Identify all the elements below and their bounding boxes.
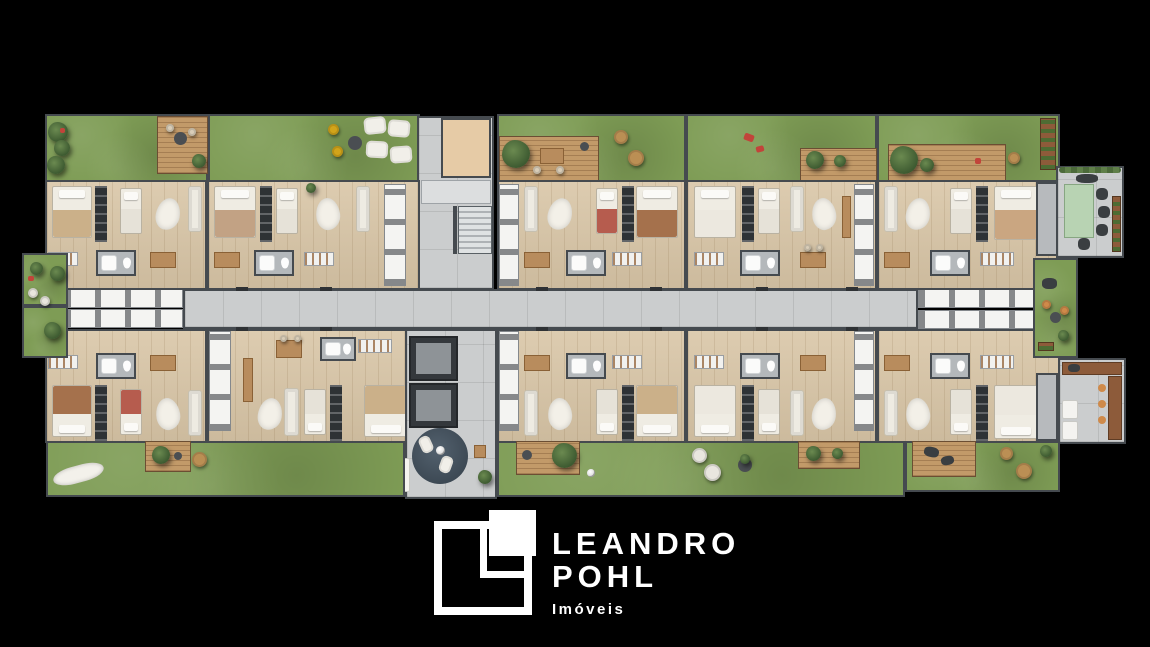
double-bed: [636, 385, 678, 437]
wardrobe: [95, 186, 107, 242]
single-bed: [120, 389, 142, 435]
plant: [806, 151, 824, 169]
rattan-pouf: [614, 130, 628, 144]
sofa: [790, 186, 804, 232]
entry-door: [236, 327, 248, 331]
elevator-shaft: [409, 336, 458, 381]
brand-logo: LEANDRO POHL Imóveis: [434, 508, 754, 628]
sofa: [188, 390, 202, 436]
single-bed: [596, 389, 618, 435]
flowers: [28, 276, 34, 281]
double-bed: [694, 186, 736, 238]
kitchen: [918, 310, 1035, 329]
single-bed: [596, 188, 618, 234]
chair: [533, 166, 541, 174]
plant: [920, 158, 934, 172]
plant: [1040, 445, 1052, 457]
dining-table: [800, 252, 826, 268]
stair-rail: [453, 206, 457, 254]
chair: [294, 335, 301, 342]
double-bed: [214, 186, 256, 238]
sofa: [284, 388, 299, 436]
kitchen: [384, 184, 406, 286]
chair: [1060, 306, 1069, 315]
kitchen: [499, 331, 519, 431]
entry-door: [846, 287, 858, 291]
sofa: [188, 186, 202, 232]
chair: [1042, 300, 1051, 309]
rattan-pouf: [628, 150, 644, 166]
corridor: [183, 289, 918, 329]
planter: [1040, 118, 1056, 170]
sofa: [790, 390, 804, 436]
island: [243, 358, 253, 402]
office-chair: [1078, 238, 1090, 250]
console: [842, 196, 851, 238]
pot: [580, 142, 589, 151]
lounger: [363, 116, 387, 135]
kitchen: [499, 184, 519, 286]
soccer-ball: [587, 469, 595, 477]
double-bed: [364, 385, 408, 437]
planter: [1038, 342, 1054, 351]
brand-text: LEANDRO POHL Imóveis: [552, 528, 740, 618]
pouf: [328, 124, 339, 135]
double-bed: [994, 385, 1038, 439]
kitchen: [64, 309, 183, 328]
bathroom: [320, 337, 356, 361]
closet: [358, 339, 392, 353]
closet: [694, 355, 724, 369]
bathroom: [254, 250, 294, 276]
stool: [1098, 384, 1106, 392]
entry-door: [236, 287, 248, 291]
rattan-pouf: [1008, 152, 1020, 164]
side-table: [474, 445, 486, 458]
dining-table: [276, 340, 302, 358]
bench: [1062, 421, 1078, 440]
plant: [832, 448, 843, 459]
kitchen: [209, 331, 231, 431]
pot: [522, 450, 532, 460]
plant: [50, 266, 65, 281]
dining-table: [214, 252, 240, 268]
shrub: [48, 122, 68, 142]
shrub: [44, 322, 61, 339]
single-bed: [758, 389, 780, 435]
bench: [1062, 400, 1078, 419]
double-bed: [636, 186, 678, 238]
plant: [30, 262, 43, 275]
plant: [152, 446, 170, 464]
hedge: [1059, 167, 1121, 173]
elevator-room: [441, 118, 491, 178]
rattan-pouf: [1016, 463, 1032, 479]
closet: [980, 252, 1014, 266]
brand-name-line1: LEANDRO: [552, 528, 740, 561]
entry-door: [650, 327, 662, 331]
sofa: [524, 186, 538, 232]
sofa: [356, 186, 370, 232]
kitchen: [64, 289, 183, 308]
bathroom-suite: [1036, 182, 1058, 256]
rattan-pouf: [1000, 447, 1013, 460]
plant: [740, 454, 750, 464]
bar-counter: [1108, 376, 1122, 440]
dining-table: [524, 355, 550, 371]
wardrobe: [260, 186, 272, 242]
entry-door: [756, 327, 768, 331]
sofa: [884, 186, 898, 232]
console: [1076, 174, 1098, 183]
single-bed: [950, 188, 972, 234]
closet: [612, 355, 642, 369]
dining-table: [150, 355, 176, 371]
entry-door: [320, 287, 332, 291]
chair: [556, 166, 564, 174]
entry-door: [650, 287, 662, 291]
chair: [816, 244, 823, 251]
staircase: [458, 206, 492, 254]
office-chair: [1096, 188, 1108, 200]
entry-door: [536, 327, 548, 331]
brand-subtitle: Imóveis: [552, 601, 740, 618]
patio-table: [436, 446, 445, 455]
sofa: [884, 390, 898, 436]
plant: [1058, 330, 1069, 341]
meeting-table: [1064, 184, 1094, 238]
wardrobe: [742, 385, 754, 441]
bathroom: [740, 250, 780, 276]
plant: [806, 446, 821, 461]
pouf: [332, 146, 343, 157]
shrub: [54, 140, 70, 156]
bathroom: [740, 353, 780, 379]
wardrobe: [622, 385, 634, 441]
fire-table: [348, 136, 362, 150]
garden-table: [1050, 312, 1061, 323]
dining-table: [524, 252, 550, 268]
office-chair: [1098, 206, 1110, 218]
wardrobe: [95, 385, 107, 441]
grill: [1042, 278, 1057, 289]
bathroom: [930, 250, 970, 276]
wardrobe: [976, 186, 988, 242]
patio-table: [174, 132, 187, 145]
double-bed: [994, 186, 1038, 240]
bathroom: [930, 353, 970, 379]
double-bed: [52, 186, 92, 238]
office-chair: [1096, 224, 1108, 236]
chair: [166, 124, 174, 132]
single-bed: [120, 188, 142, 234]
pot: [174, 452, 182, 460]
closet: [612, 252, 642, 266]
wardrobe: [330, 385, 342, 441]
double-bed: [52, 385, 92, 437]
stool: [1098, 400, 1106, 408]
double-bed: [694, 385, 736, 437]
grill: [1068, 364, 1080, 372]
wardrobe: [742, 186, 754, 242]
closet: [694, 252, 724, 266]
entry-door: [536, 287, 548, 291]
poster-canvas: LEANDRO POHL Imóveis: [0, 0, 1150, 647]
single-bed: [758, 188, 780, 234]
bathroom: [96, 250, 136, 276]
planter: [1112, 196, 1121, 252]
chair: [804, 244, 811, 251]
logo-solid-square-icon: [489, 510, 536, 556]
kitchen: [854, 184, 874, 286]
flowers: [975, 158, 981, 164]
pouf: [28, 288, 38, 298]
dining-table: [884, 355, 910, 371]
pouf: [40, 296, 50, 306]
single-bed: [950, 389, 972, 435]
kitchen: [918, 289, 1035, 308]
bathroom: [566, 353, 606, 379]
bathroom: [566, 250, 606, 276]
plant: [478, 470, 492, 484]
entry-door: [756, 287, 768, 291]
plant: [192, 154, 206, 168]
pouf: [704, 464, 721, 481]
closet: [980, 355, 1014, 369]
bathroom-suite: [1036, 373, 1058, 441]
brand-name-line2: POHL: [552, 561, 740, 594]
bathroom: [96, 353, 136, 379]
lounger: [387, 119, 410, 138]
plant: [306, 183, 316, 193]
dining-table: [800, 355, 826, 371]
lounger: [366, 140, 389, 158]
chair: [280, 335, 287, 342]
closet: [304, 252, 334, 266]
tree: [552, 443, 577, 468]
dining-table: [150, 252, 176, 268]
landing-mat: [421, 180, 491, 204]
flowers: [60, 128, 65, 133]
stool: [1098, 416, 1106, 424]
entry-door: [846, 327, 858, 331]
plant: [834, 155, 846, 167]
pouf: [692, 448, 707, 463]
elevator-shaft: [409, 383, 458, 428]
tree: [502, 140, 530, 168]
sofa: [524, 390, 538, 436]
kitchen: [854, 331, 874, 431]
entry-door: [320, 327, 332, 331]
garden-table: [540, 148, 564, 164]
dining-table: [884, 252, 910, 268]
wardrobe: [622, 186, 634, 242]
palm: [890, 146, 918, 174]
shrub: [47, 156, 65, 174]
wardrobe: [976, 385, 988, 441]
single-bed: [304, 389, 326, 435]
single-bed: [276, 188, 298, 234]
chair: [188, 128, 196, 136]
rattan-basket: [192, 452, 207, 467]
lounger: [389, 145, 412, 163]
